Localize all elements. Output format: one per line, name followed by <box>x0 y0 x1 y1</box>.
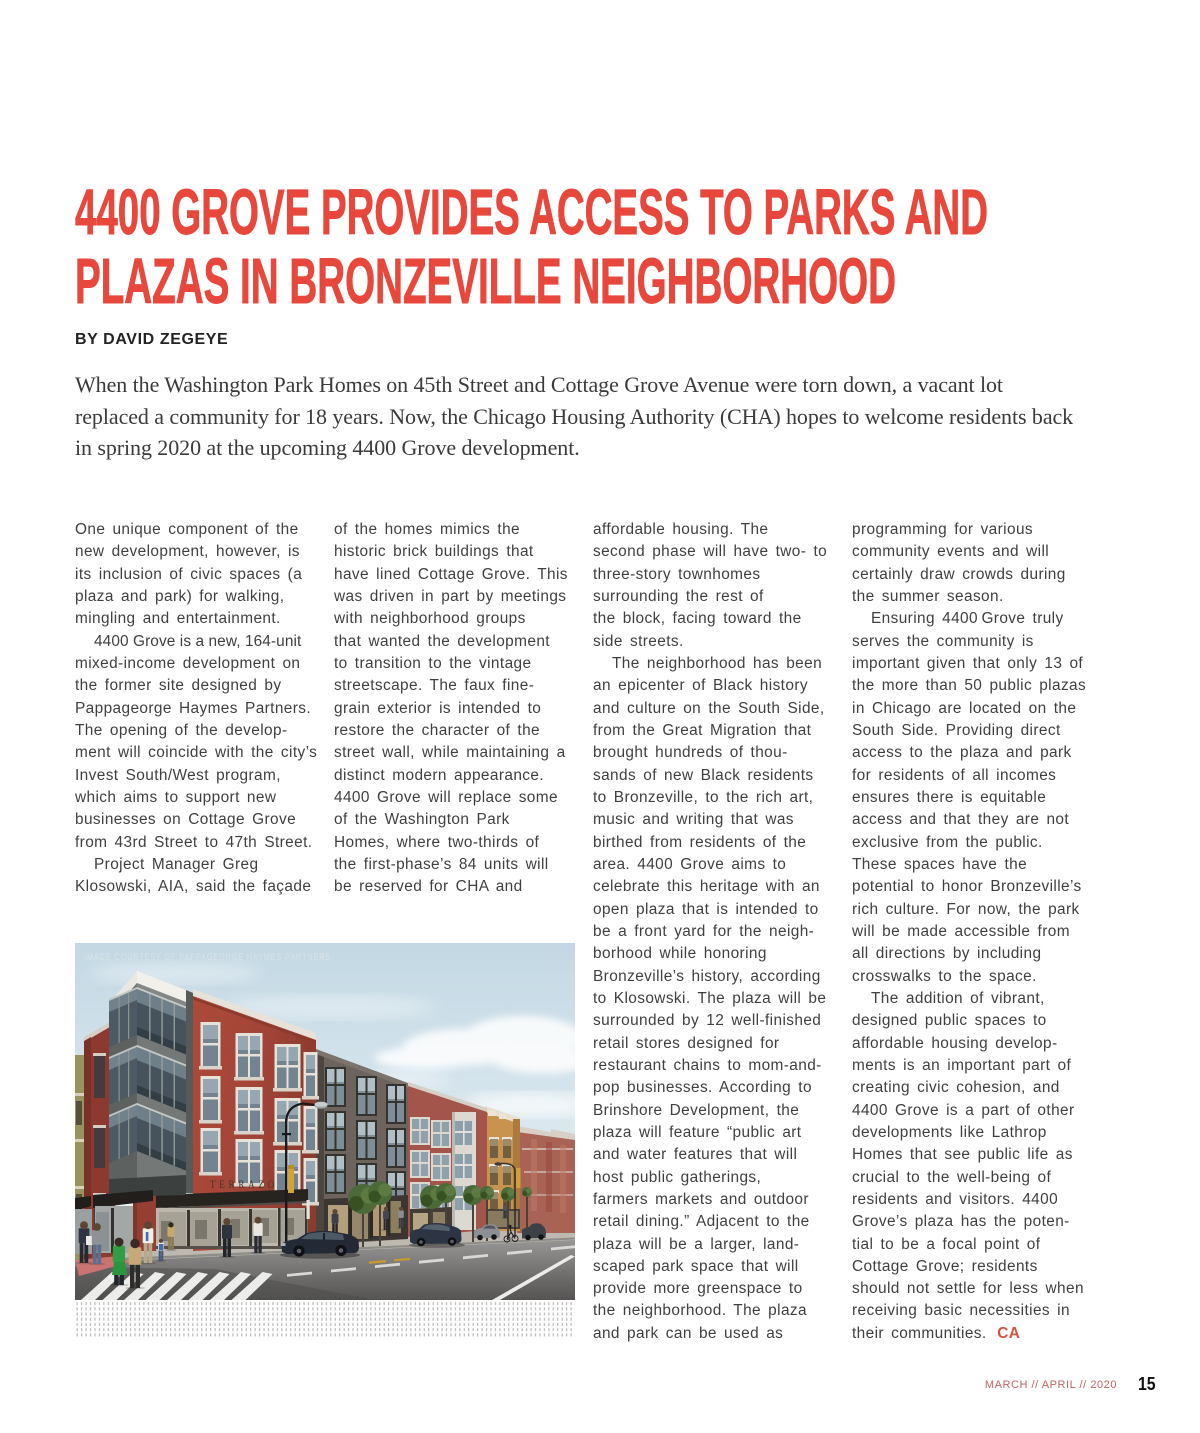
svg-text:TERRAZO: TERRAZO <box>210 1177 278 1191</box>
svg-text:IMAGE COURTESY OF PAPPAGEORGE: IMAGE COURTESY OF PAPPAGEORGE HAYMES PAR… <box>84 952 331 963</box>
svg-text:PLAZAS IN BRONZEVILLE NEIGHBOR: PLAZAS IN BRONZEVILLE NEIGHBORHOOD <box>75 245 896 316</box>
svg-text:4400 GROVE PROVIDES ACCESS TO: 4400 GROVE PROVIDES ACCESS TO PARKS AND <box>75 186 988 248</box>
